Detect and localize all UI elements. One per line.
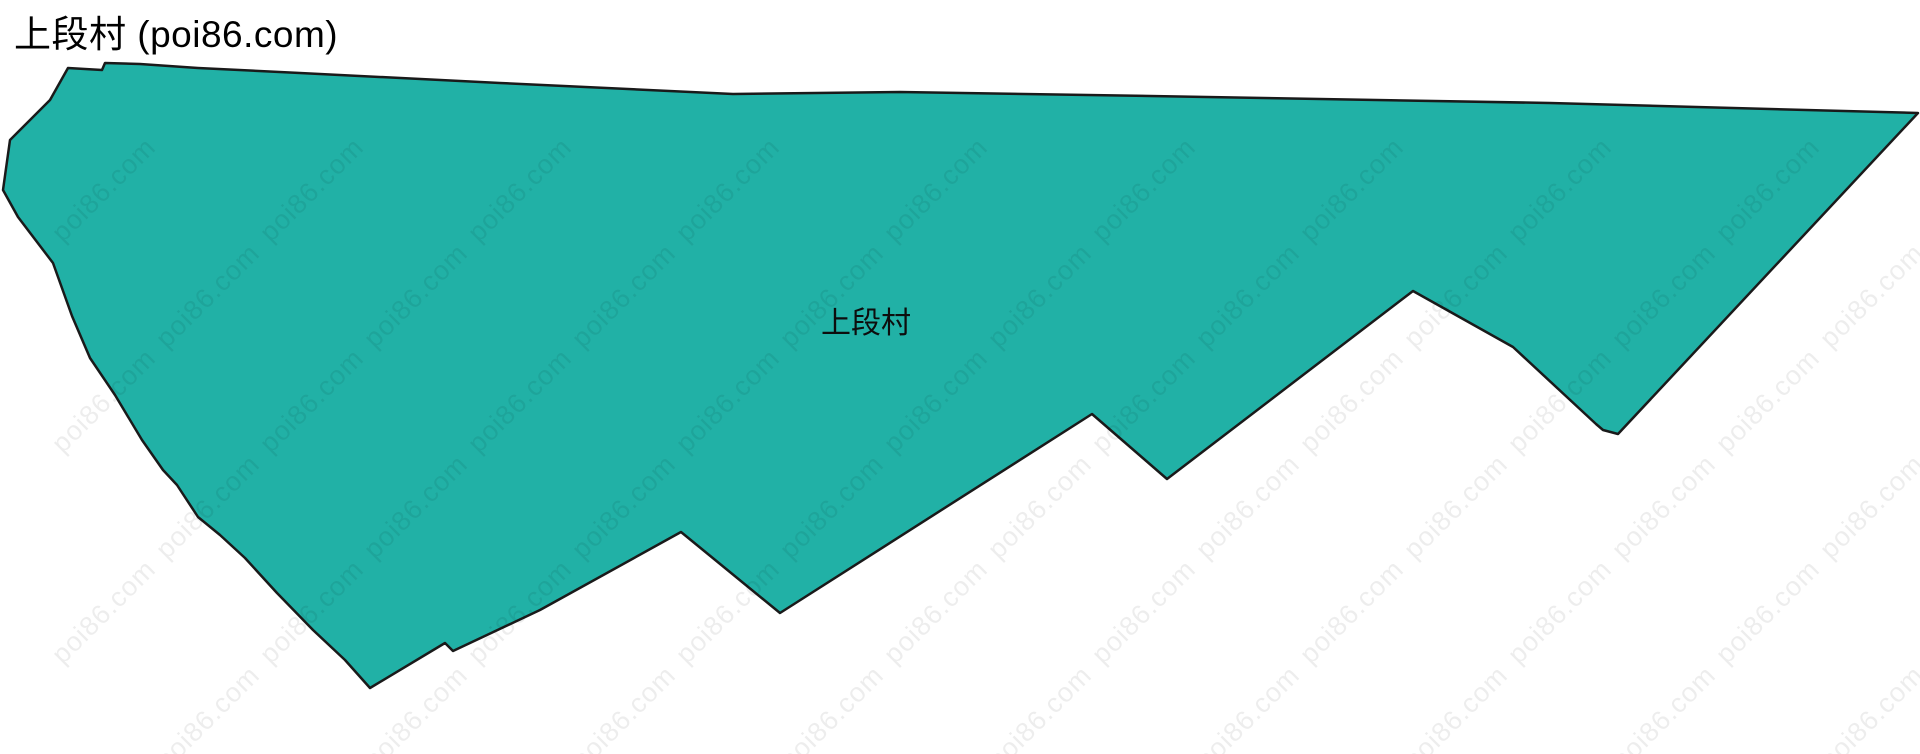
map-canvas: 上段村 (poi86.com) poi86.compoi86.compoi86.… <box>0 0 1920 754</box>
page-title: 上段村 (poi86.com) <box>14 4 338 58</box>
village-label: 上段村 <box>821 298 911 342</box>
map-plot <box>0 0 1920 754</box>
village-boundary-polygon <box>3 63 1918 688</box>
